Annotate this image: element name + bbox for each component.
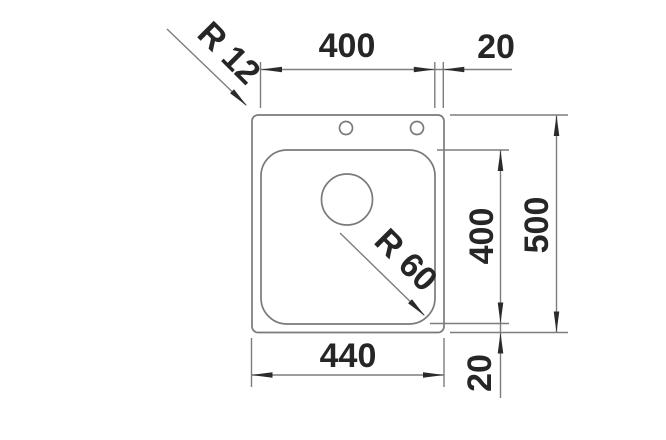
arrowhead-bottom-offset bbox=[498, 333, 504, 354]
dim-label-total-depth: 500 bbox=[518, 197, 556, 254]
sink-outline bbox=[252, 115, 444, 333]
arrowhead-total-width-left bbox=[252, 372, 273, 378]
dim-label-outer-radius: R 12 bbox=[190, 14, 268, 92]
dim-label-total-width: 440 bbox=[320, 337, 377, 375]
technical-drawing-canvas: 400 20 500 400 440 20 R 12 R 60 bbox=[0, 0, 666, 440]
dim-label-top-width: 400 bbox=[319, 27, 376, 65]
faucet-hole-right bbox=[411, 122, 424, 135]
arrowhead-total-depth-top bbox=[554, 115, 560, 136]
arrowhead-bowl-radius bbox=[408, 299, 427, 318]
arrowhead-total-depth-bottom bbox=[554, 312, 560, 333]
arrowhead-bowl-depth-bottom bbox=[498, 303, 504, 324]
arrowhead-bowl-depth-top bbox=[498, 150, 504, 171]
dim-label-bowl-radius: R 60 bbox=[367, 221, 445, 299]
faucet-hole-left bbox=[340, 122, 353, 135]
dim-label-top-offset: 20 bbox=[477, 28, 515, 66]
arrowhead-total-width-right bbox=[423, 372, 444, 378]
arrowhead-outer-radius bbox=[230, 89, 249, 108]
arrowhead-top-width-right bbox=[414, 67, 435, 73]
sink-dimension-drawing: 400 20 500 400 440 20 R 12 R 60 bbox=[0, 0, 666, 440]
drain-circle bbox=[322, 174, 373, 225]
arrowhead-top-offset bbox=[443, 67, 464, 73]
dim-label-bottom-offset: 20 bbox=[461, 354, 499, 392]
dim-label-bowl-depth: 400 bbox=[463, 208, 501, 265]
